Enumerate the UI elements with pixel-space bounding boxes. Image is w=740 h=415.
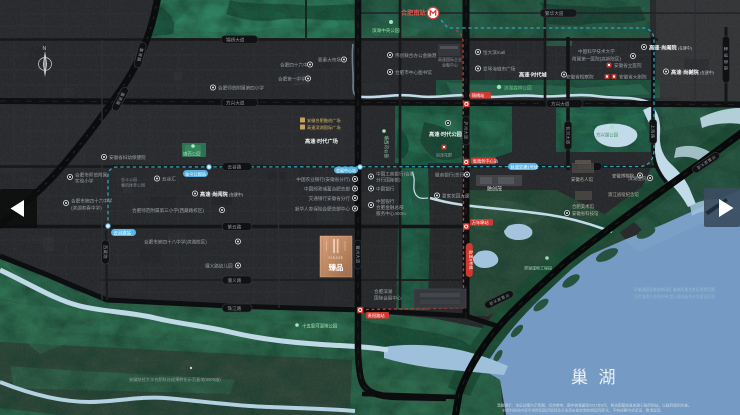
svg-text:方兴大道: 方兴大道	[551, 101, 570, 108]
svg-text:繁华大道: 繁华大道	[545, 10, 564, 17]
svg-text:合肥第一中学: 合肥第一中学	[278, 76, 306, 83]
svg-text:高速·尚阖院: 高速·尚阖院	[649, 44, 677, 52]
svg-text:高速国际企业: 高速国际企业	[438, 56, 462, 62]
svg-text:安徽省大剧院: 安徽省大剧院	[619, 74, 647, 81]
svg-text:臻品: 臻品	[329, 263, 344, 272]
svg-text:金斗公园站: 金斗公园站	[185, 170, 206, 177]
svg-text:安徽省立医院: 安徽省立医院	[614, 62, 642, 69]
svg-text:中国银行: 中国银行	[376, 186, 395, 193]
svg-text:(在建中): (在建中)	[700, 70, 715, 75]
svg-text:会展中心站: 会展中心站	[336, 167, 356, 173]
svg-text:高速·时代公园: 高速·时代公园	[429, 130, 462, 138]
svg-text:合肥四十六中: 合肥四十六中	[280, 62, 308, 69]
svg-text:合肥美术馆: 合肥美术馆	[572, 203, 595, 210]
svg-text:恒大滨mall: 恒大滨mall	[483, 49, 505, 56]
svg-text:滨湖森林公园: 滨湖森林公园	[504, 85, 532, 92]
svg-text:塘西公园: 塘西公园	[183, 151, 201, 158]
svg-text:巢湖南路: 巢湖南路	[722, 47, 729, 73]
svg-text:包河大道: 包河大道	[565, 127, 571, 145]
svg-text:巢湖: 巢湖	[571, 368, 626, 387]
svg-text:高速·时代广场: 高速·时代广场	[305, 137, 338, 145]
svg-text:锦绣站: 锦绣站	[472, 92, 485, 99]
svg-text:尚泽花郡: 尚泽花郡	[436, 152, 452, 158]
svg-text:本资料相关内容不排除因政府规划及开发商未能控制的原因而变化，: 本资料相关内容不排除因政府规划及开发商未能控制的原因而变化，不构成要约或承诺，敬…	[502, 408, 664, 413]
svg-text:沿岸湿地生态保护带 禁止填湖造地开发建设区域: 沿岸湿地生态保护带 禁止填湖造地开发建设区域	[634, 294, 715, 299]
svg-text:中国农业银行(安徽省分行): 中国农业银行(安徽省分行)	[296, 176, 350, 183]
svg-text:中国银行: 中国银行	[376, 198, 395, 205]
svg-text:省政务中心站: 省政务中心站	[473, 158, 498, 165]
svg-text:新华人寿保险合肥总部中心: 新华人寿保险合肥总部中心	[295, 206, 351, 213]
svg-text:温馨提示：本区位图为示意图，仅供参考。图中信息截至2021年: 温馨提示：本区位图为示意图，仅供参考。图中信息截至2021年8月，相关配套信息来…	[497, 403, 692, 408]
svg-text:金斗公园: 金斗公园	[121, 176, 137, 182]
svg-text:珠江路: 珠江路	[228, 305, 242, 312]
svg-text:(在建中): (在建中)	[678, 46, 693, 51]
svg-text:高速滨湖国际广场: 高速滨湖国际广场	[307, 124, 341, 131]
svg-text:中国科学技术大学: 中国科学技术大学	[578, 48, 615, 55]
svg-text:云谷汇: 云谷汇	[162, 176, 176, 183]
svg-text:紫云路: 紫云路	[228, 224, 242, 231]
svg-text:中国邮政储蓄合肥总部: 中国邮政储蓄合肥总部	[304, 186, 350, 193]
svg-text:徽州大道: 徽州大道	[355, 246, 361, 264]
svg-text:安徽合肥融创广场: 安徽合肥融创广场	[307, 117, 341, 124]
svg-text:高速·尚阅院: 高速·尚阅院	[200, 190, 228, 198]
svg-text:合肥南站: 合肥南站	[401, 9, 427, 17]
svg-text:合肥市中心图书馆: 合肥市中心图书馆	[395, 69, 432, 76]
svg-text:万年埠站: 万年埠站	[472, 219, 489, 226]
svg-text:交通银行安徽省分行: 交通银行安徽省分行	[309, 195, 351, 202]
svg-text:合肥师范附属第三小学(西藏路校区): 合肥师范附属第三小学(西藏路校区)	[132, 207, 204, 214]
svg-text:遵义路幼儿园: 遵义路幼儿园	[205, 263, 233, 270]
svg-text:(在建中): (在建中)	[229, 192, 244, 197]
svg-text:(滨湖寿春中学): (滨湖寿春中学)	[71, 205, 102, 212]
svg-text:实验小学: 实验小学	[75, 178, 94, 185]
svg-text:要素大市场: 要素大市场	[318, 57, 341, 64]
svg-text:合肥市师范附属: 合肥市师范附属	[75, 172, 108, 179]
svg-text:夏家花园大厦: 夏家花园大厦	[442, 193, 470, 200]
svg-text:安徽名人馆: 安徽名人馆	[571, 176, 594, 183]
svg-text:合肥金融总部: 合肥金融总部	[376, 204, 404, 211]
svg-text:爱琴海城市广场: 爱琴海城市广场	[483, 66, 516, 73]
svg-text:安徽省妇幼保健院: 安徽省妇幼保健院	[109, 154, 146, 161]
svg-text:伟创联合办公金融港: 伟创联合办公金融港	[395, 52, 437, 59]
svg-text:遵义路: 遵义路	[228, 277, 242, 284]
svg-text:轨道8号线: 轨道8号线	[468, 250, 473, 269]
svg-text:合肥市第四十六中学: 合肥市第四十六中学	[71, 198, 113, 205]
svg-text:塘西河公园: 塘西河公园	[384, 136, 390, 159]
svg-text:合肥师范附属第四小学: 合肥师范附属第四小学	[218, 85, 264, 92]
svg-text:贵阳路站: 贵阳路站	[368, 312, 385, 319]
svg-text:方兴大道: 方兴大道	[226, 100, 245, 107]
svg-text:渡江战役纪念馆: 渡江战役纪念馆	[608, 191, 639, 198]
svg-text:中国工商银行(合肥: 中国工商银行(合肥	[376, 171, 415, 178]
svg-text:徽商银行(总行): 徽商银行(总行)	[435, 172, 466, 179]
svg-text:上海路: 上海路	[649, 124, 656, 138]
svg-text:FISJOE: FISJOE	[329, 256, 344, 260]
svg-text:春风体育公园: 春风体育公园	[121, 182, 145, 188]
svg-text:滨湖湿地工程段: 滨湖湿地工程段	[524, 265, 552, 271]
svg-text:高速·时代城: 高速·时代城	[519, 71, 547, 79]
svg-text:金融中心: 金融中心	[442, 62, 458, 68]
svg-text:滨湖中央公园: 滨湖中央公园	[372, 27, 400, 34]
svg-text:附属第一医院(高新院区): 附属第一医院(高新院区)	[572, 56, 621, 63]
svg-text:分行国际部): 分行国际部)	[376, 177, 401, 184]
svg-text:融创茂: 融创茂	[487, 186, 502, 193]
svg-text:十五里河湿地公园: 十五里河湿地公园	[302, 323, 338, 330]
svg-text:云谷路站: 云谷路站	[114, 229, 132, 236]
svg-text:锦绣大道: 锦绣大道	[226, 37, 245, 44]
svg-text:安徽省检察院: 安徽省检察院	[566, 74, 594, 81]
svg-text:合肥滨湖: 合肥滨湖	[374, 288, 393, 295]
svg-text:西藏路: 西藏路	[102, 245, 109, 259]
svg-text:高速·尚樾院: 高速·尚樾院	[671, 68, 699, 76]
svg-text:安徽财经大学合肥科技成果转化示范基地(6000亩): 安徽财经大学合肥科技成果转化示范基地(6000亩)	[129, 376, 221, 383]
svg-text:服务中心400m: 服务中心400m	[376, 210, 406, 217]
svg-text:方兴湖公园: 方兴湖公园	[596, 132, 619, 139]
svg-text:滨湖医院: 滨湖医院	[628, 175, 647, 182]
svg-text:合肥市第四十八中学(滨湖校区): 合肥市第四十八中学(滨湖校区)	[144, 239, 207, 246]
svg-text:安徽省科技馆: 安徽省科技馆	[572, 210, 599, 217]
svg-text:国际会展中心: 国际会展中心	[374, 295, 402, 302]
svg-text:N: N	[43, 46, 47, 52]
svg-text:轨道交通1号线: 轨道交通1号线	[511, 163, 539, 170]
svg-text:云谷路: 云谷路	[228, 164, 242, 171]
svg-text:庐州大道: 庐州大道	[463, 122, 469, 140]
svg-text:环巢湖国家旅游休闲区 巢湖风景名胜区规划范围: 环巢湖国家旅游休闲区 巢湖风景名胜区规划范围	[634, 287, 715, 292]
